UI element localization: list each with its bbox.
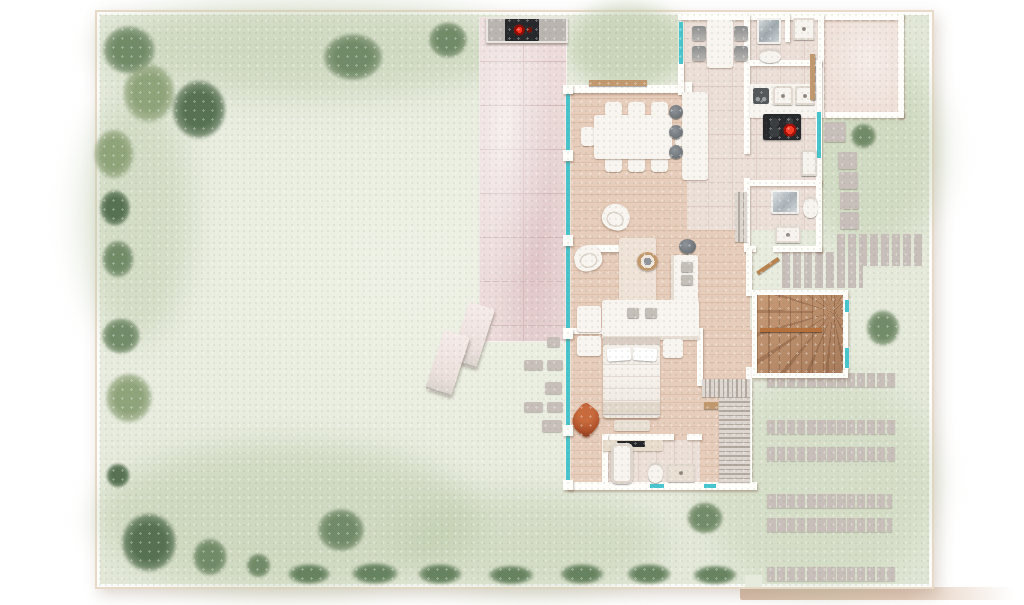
driveway-row: [767, 567, 895, 581]
shower: [757, 18, 781, 44]
tree: [95, 362, 163, 434]
nook-chair: [692, 26, 706, 41]
stepping-stone: [545, 382, 562, 394]
dining-shelf: [589, 80, 647, 86]
sofa-pillow: [645, 308, 657, 318]
breakfast-table: [707, 20, 733, 68]
open-door-leaf: [756, 257, 780, 275]
wall: [816, 180, 822, 252]
bar-stool: [669, 145, 683, 159]
wall: [563, 425, 573, 436]
tree: [85, 118, 143, 190]
site-plan: [0, 0, 1024, 605]
wall: [750, 180, 822, 186]
window-strip: [704, 484, 716, 488]
tree: [241, 548, 276, 583]
sofa-seat: [602, 300, 699, 340]
sofa-pillow: [681, 275, 693, 285]
wall: [563, 328, 573, 339]
tree: [109, 500, 189, 585]
wall: [563, 235, 573, 246]
wall: [773, 246, 822, 252]
stepping-stone: [542, 420, 562, 432]
tree: [160, 67, 238, 152]
driveway-row: [767, 447, 895, 461]
stair-treads: [757, 295, 843, 373]
window-strip: [845, 300, 849, 312]
toilet: [759, 48, 781, 63]
stepping-stone: [547, 402, 563, 412]
window-strip: [845, 348, 849, 368]
dining-table: [594, 115, 672, 159]
wall: [746, 248, 752, 296]
window-strip: [817, 112, 821, 158]
vanity-basin: [667, 464, 695, 482]
path-stone: [840, 212, 859, 229]
stair-handrail: [760, 328, 822, 332]
dining-chair: [605, 157, 622, 172]
hedge: [343, 559, 407, 588]
sofa-pillow: [627, 308, 639, 318]
bed-pillow: [633, 347, 658, 362]
wall: [563, 150, 573, 161]
nightstand: [663, 339, 683, 358]
wall: [563, 85, 573, 94]
closet-shelf: [704, 402, 718, 409]
grey-stool: [679, 239, 696, 254]
bathtub: [611, 443, 633, 484]
bed-pillow: [607, 347, 632, 362]
tree: [101, 458, 135, 493]
stepping-stone: [524, 402, 543, 412]
wall: [785, 14, 790, 42]
tree: [420, 14, 476, 66]
tree: [93, 182, 137, 234]
washbasin: [793, 18, 815, 40]
window-strip: [650, 484, 664, 488]
hedge: [280, 560, 338, 588]
path-stone: [838, 152, 857, 169]
bed-bench: [614, 420, 650, 431]
wardrobe-louver: [719, 397, 750, 482]
garden-plot: [95, 10, 934, 589]
hedge: [685, 562, 745, 588]
window-strip: [679, 22, 683, 64]
driveway-row: [767, 518, 892, 532]
tree: [93, 310, 149, 362]
side-table: [577, 336, 601, 356]
tree: [679, 495, 731, 541]
hedge: [619, 560, 679, 588]
wall: [678, 62, 684, 95]
tree: [185, 530, 235, 584]
path-stone: [824, 122, 846, 142]
wall: [563, 480, 573, 490]
coffee-machine: [753, 88, 769, 104]
nook-chair: [734, 26, 748, 41]
hedge: [410, 560, 470, 588]
floor-entrance-hall: [824, 20, 898, 116]
dining-chair: [651, 157, 668, 172]
tree: [95, 232, 141, 286]
dining-chair: [628, 157, 645, 172]
fridge: [801, 150, 817, 176]
terrace: [479, 17, 567, 342]
toilet: [648, 462, 663, 483]
tree: [845, 118, 882, 154]
stepping-stone: [547, 337, 560, 347]
kitchen-sink: [773, 86, 793, 105]
dining-chair: [581, 127, 595, 146]
driveway-row: [767, 420, 895, 434]
paved-band: [782, 252, 863, 288]
stepping-stone: [524, 360, 543, 370]
sofa-pillow: [681, 262, 693, 272]
radiator-louver: [735, 192, 747, 242]
shower-glass: [771, 190, 799, 214]
lawn-shade: [567, 4, 687, 89]
side-table: [577, 306, 601, 332]
bed-blanket: [603, 402, 660, 414]
tree: [859, 302, 907, 354]
hedge: [480, 562, 542, 588]
entry-bench: [810, 54, 815, 100]
bbq-grill: [505, 19, 539, 41]
wall: [687, 434, 702, 440]
wardrobe-louver: [702, 379, 750, 397]
nook-chair: [734, 46, 748, 61]
wall: [565, 85, 687, 93]
hedge: [552, 560, 612, 588]
vanity-basin: [775, 226, 801, 243]
tree: [310, 23, 396, 91]
bar-stool: [669, 125, 683, 139]
bar-stool: [669, 105, 683, 119]
cooktop: [763, 114, 801, 140]
stepping-stone: [547, 360, 563, 370]
gate-opening: [745, 575, 762, 587]
tree: [307, 499, 375, 561]
nook-chair: [692, 46, 706, 61]
staircase: [752, 290, 848, 378]
toilet: [803, 196, 818, 218]
path-stone: [839, 172, 858, 189]
wall: [898, 14, 904, 118]
round-side-table: [637, 252, 658, 271]
driveway-row: [767, 494, 892, 508]
kitchen-island: [682, 92, 708, 180]
path-stone: [840, 192, 859, 209]
